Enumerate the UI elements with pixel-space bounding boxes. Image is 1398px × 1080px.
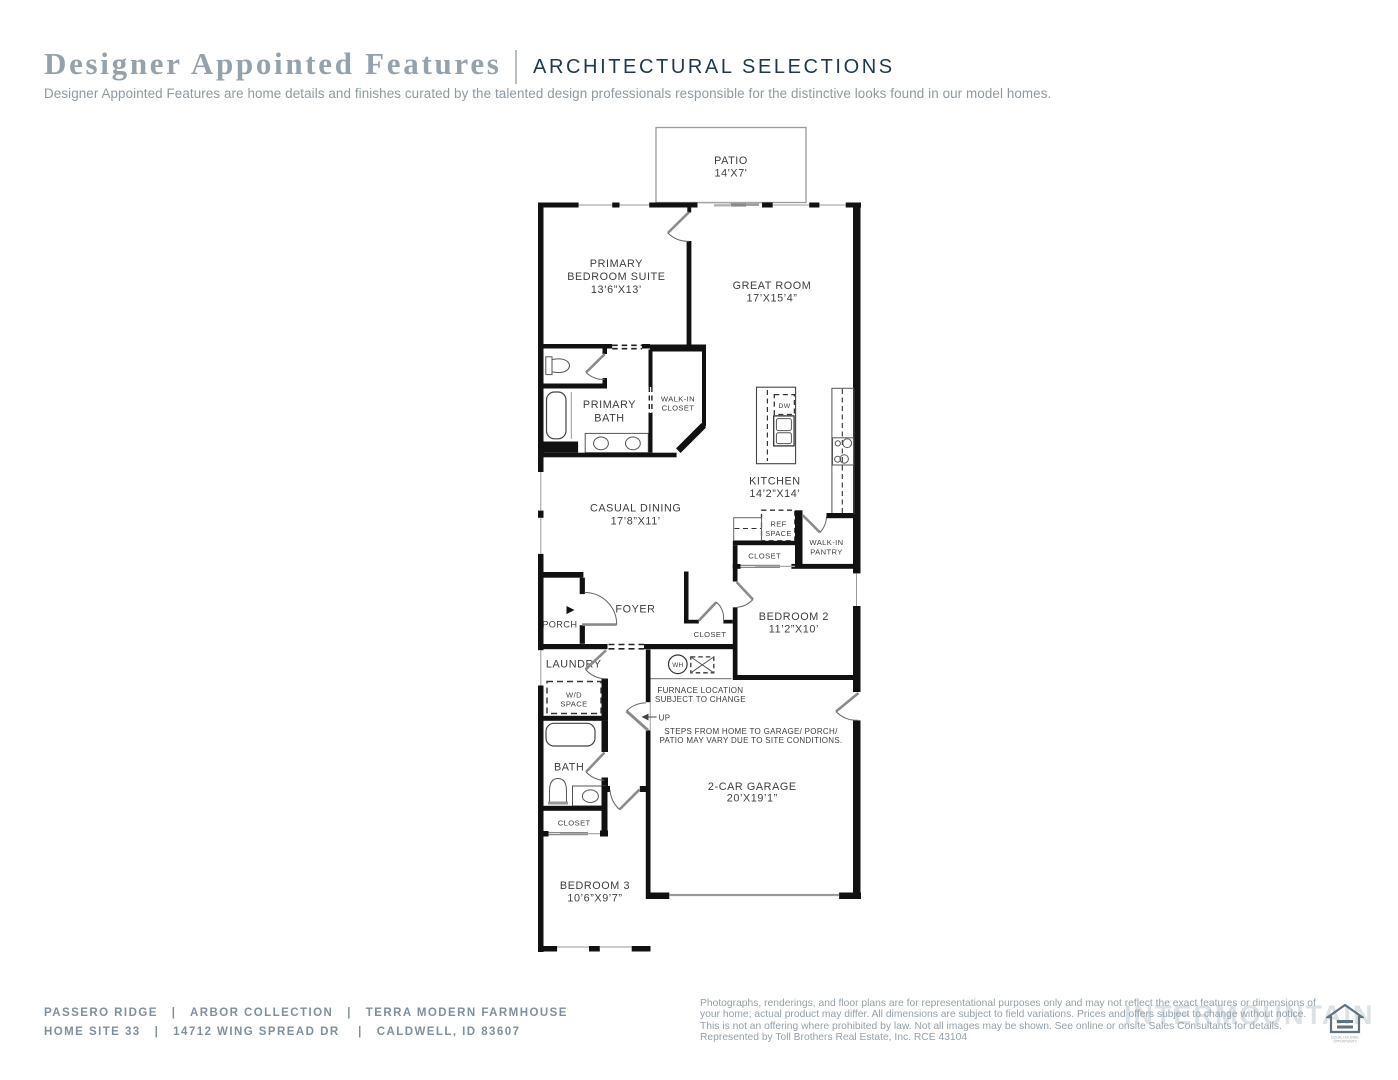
svg-text:BEDROOM 3: BEDROOM 3: [560, 880, 630, 892]
svg-text:BEDROOM 2: BEDROOM 2: [759, 611, 829, 623]
svg-text:BATH: BATH: [554, 762, 584, 774]
svg-text:CASUAL DINING: CASUAL DINING: [590, 503, 681, 515]
svg-text:20’X19’1”: 20’X19’1”: [727, 793, 778, 805]
svg-text:CLOSET: CLOSET: [662, 404, 695, 413]
svg-text:PRIMARY: PRIMARY: [590, 258, 643, 270]
svg-text:FURNACE LOCATION: FURNACE LOCATION: [657, 686, 743, 695]
svg-text:2-CAR GARAGE: 2-CAR GARAGE: [708, 781, 797, 793]
svg-text:LAUNDRY: LAUNDRY: [546, 659, 602, 671]
svg-text:REF: REF: [771, 520, 787, 529]
svg-text:SPACE: SPACE: [560, 700, 587, 709]
svg-text:CLOSET: CLOSET: [748, 552, 781, 561]
svg-text:WH: WH: [672, 662, 683, 669]
svg-text:14’2”X14’: 14’2”X14’: [749, 488, 800, 500]
svg-text:BEDROOM SUITE: BEDROOM SUITE: [567, 271, 665, 283]
svg-text:PANTRY: PANTRY: [810, 548, 843, 557]
svg-text:10’6”X9’7”: 10’6”X9’7”: [567, 893, 622, 905]
svg-text:FOYER: FOYER: [615, 604, 655, 616]
svg-text:14'X7': 14'X7': [715, 168, 748, 180]
svg-text:SPACE: SPACE: [765, 529, 792, 538]
svg-text:STEPS FROM HOME TO GARAGE/ POR: STEPS FROM HOME TO GARAGE/ PORCH/: [664, 727, 838, 736]
svg-text:WALK-IN: WALK-IN: [661, 395, 695, 404]
svg-text:BATH: BATH: [594, 413, 624, 425]
svg-text:PATIO MAY VARY DUE TO SITE CON: PATIO MAY VARY DUE TO SITE CONDITIONS.: [660, 736, 843, 745]
svg-text:W/D: W/D: [566, 691, 582, 700]
svg-text:KITCHEN: KITCHEN: [749, 476, 801, 488]
svg-text:PRIMARY: PRIMARY: [583, 399, 636, 411]
svg-text:DW: DW: [779, 403, 791, 410]
svg-text:CLOSET: CLOSET: [558, 819, 591, 828]
svg-text:UP: UP: [659, 713, 671, 722]
svg-text:GREAT ROOM: GREAT ROOM: [733, 280, 812, 292]
svg-text:WALK-IN: WALK-IN: [809, 538, 843, 547]
svg-text:PORCH: PORCH: [542, 620, 577, 630]
svg-text:17’X15’4”: 17’X15’4”: [746, 293, 797, 305]
svg-text:13’6”X13’: 13’6”X13’: [591, 284, 642, 296]
svg-text:PATIO: PATIO: [714, 155, 748, 167]
svg-text:17’8”X11’: 17’8”X11’: [611, 516, 661, 528]
svg-text:SUBJECT TO CHANGE: SUBJECT TO CHANGE: [655, 695, 746, 704]
svg-text:11’2”X10’: 11’2”X10’: [769, 624, 819, 636]
svg-text:CLOSET: CLOSET: [694, 630, 727, 639]
